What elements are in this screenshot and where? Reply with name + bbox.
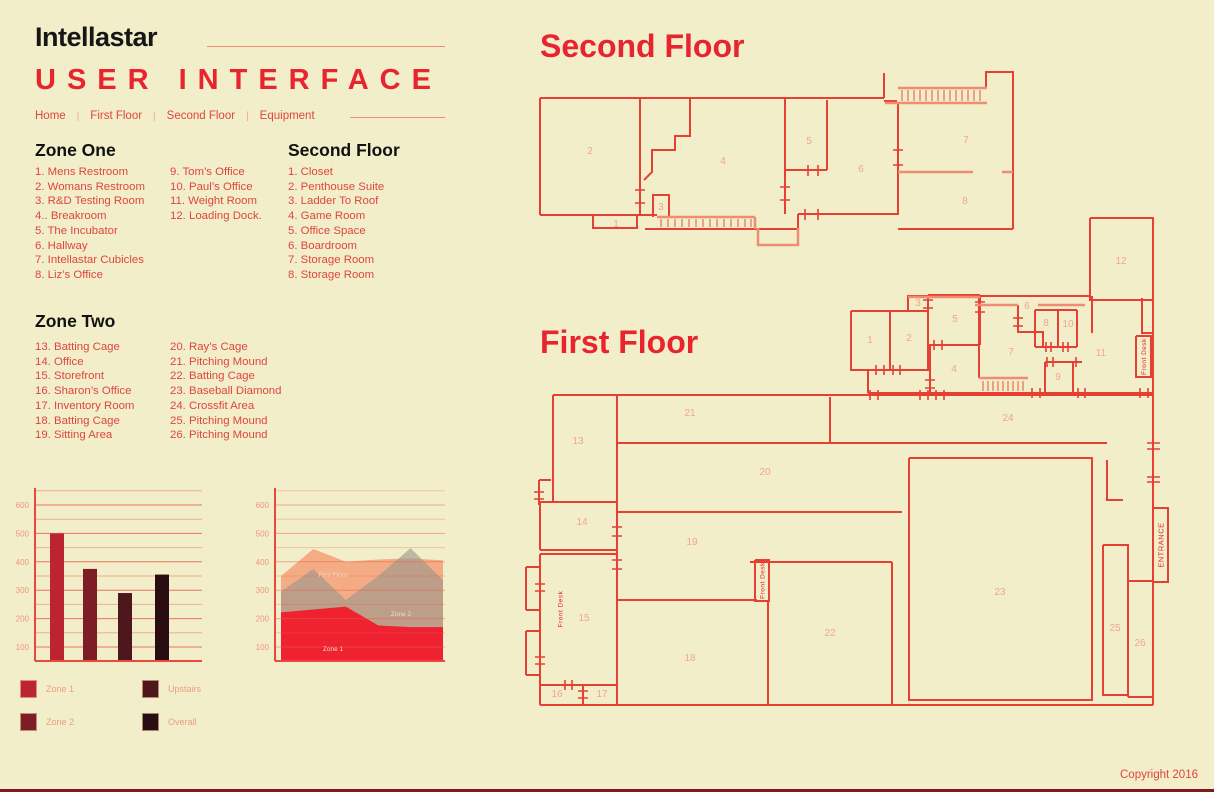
- room-list-item: 3. Ladder To Roof: [288, 194, 384, 209]
- nav-item-equipment[interactable]: Equipment: [260, 110, 315, 122]
- nav-separator: |: [153, 111, 156, 122]
- room-list-item: 22. Batting Cage: [170, 369, 281, 384]
- second-floor-heading: Second Floor: [288, 140, 400, 161]
- room-label: 25: [1109, 623, 1121, 634]
- zone-one-list-col2: 9. Tom’s Office 10. Paul’s Office 11. We…: [170, 165, 262, 224]
- nav-separator: |: [246, 111, 249, 122]
- room-list-item: 17. Inventory Room: [35, 399, 134, 414]
- svg-text:600: 600: [256, 501, 270, 510]
- svg-text:300: 300: [256, 586, 270, 595]
- room-list-item: 16. Sharon’s Office: [35, 384, 134, 399]
- legend-swatch-upstairs: [142, 680, 159, 698]
- nav-item-home[interactable]: Home: [35, 110, 66, 122]
- svg-text:Zone 1: Zone 1: [323, 646, 344, 653]
- room-label: 2: [587, 146, 593, 157]
- room-label: 8: [962, 196, 968, 207]
- room-label: 5: [952, 314, 958, 325]
- room-list-item: 7. Storage Room: [288, 253, 384, 268]
- room-list-item: 14. Office: [35, 355, 134, 370]
- legend-label: Zone 1: [46, 684, 74, 694]
- nav-divider-line: [350, 117, 445, 118]
- room-list-item: 5. The Incubator: [35, 224, 145, 239]
- zone-one-list-col1: 1. Mens Restroom 2. Womans Restroom 3. R…: [35, 165, 145, 283]
- room-label: 3: [658, 202, 664, 213]
- svg-text:100: 100: [256, 643, 270, 652]
- svg-text:100: 100: [16, 643, 30, 652]
- legend-label: Zone 2: [46, 717, 74, 727]
- room-label: 13: [572, 436, 584, 447]
- svg-text:500: 500: [256, 529, 270, 538]
- room-label: 14: [576, 517, 588, 528]
- svg-text:Zone 2: Zone 2: [391, 611, 412, 618]
- room-list-item: 8. Storage Room: [288, 268, 384, 283]
- room-label: 4: [720, 156, 726, 167]
- room-label: 8: [1043, 318, 1049, 329]
- room-label: 9: [1055, 372, 1061, 383]
- nav-separator: |: [77, 111, 80, 122]
- zone-two-heading: Zone Two: [35, 311, 115, 332]
- room-label: 6: [1024, 301, 1030, 312]
- copyright-text: Copyright 2016: [1120, 769, 1198, 781]
- room-list-item: 18. Batting Cage: [35, 414, 134, 429]
- room-list-item: 24. Crossfit Area: [170, 399, 281, 414]
- room-list-item: 26. Pitching Mound: [170, 428, 281, 443]
- room-label: 12: [1115, 256, 1127, 267]
- room-label: 10: [1062, 319, 1074, 330]
- page-title: USER INTERFACE: [35, 64, 442, 97]
- room-list-item: 19. Sitting Area: [35, 428, 134, 443]
- room-label: 19: [686, 537, 698, 548]
- room-list-item: 3. R&D Testing Room: [35, 194, 145, 209]
- room-label: 23: [994, 587, 1006, 598]
- room-list-item: 10. Paul’s Office: [170, 180, 262, 195]
- legend-label: Overall: [168, 717, 197, 727]
- room-list-item: 1. Mens Restroom: [35, 165, 145, 180]
- room-label: 17: [596, 689, 608, 700]
- room-label: 24: [1002, 413, 1014, 424]
- svg-text:300: 300: [16, 586, 30, 595]
- second-floor-door-marks: [635, 150, 903, 220]
- charts-canvas: 100200300400500600100200300400500600Firs…: [0, 480, 520, 680]
- svg-text:200: 200: [16, 615, 30, 624]
- legend-entry: Zone 2: [20, 705, 142, 738]
- room-label: 7: [963, 135, 969, 146]
- room-label: 20: [759, 467, 771, 478]
- second-floor-hatch-and-door-ticks: [661, 90, 980, 227]
- room-list-item: 8. Liz’s Office: [35, 268, 145, 283]
- second-floor-list: 1. Closet 2. Penthouse Suite 3. Ladder T…: [288, 165, 384, 283]
- header-divider-line: [207, 46, 445, 47]
- room-label: 21: [684, 408, 696, 419]
- room-list-item: 13. Batting Cage: [35, 340, 134, 355]
- legend-entry: Overall: [142, 705, 201, 738]
- nav-item-second-floor[interactable]: Second Floor: [167, 110, 235, 122]
- room-list-item: 11. Weight Room: [170, 194, 262, 209]
- legend-entry: Zone 1: [20, 672, 142, 705]
- zone-two-list-col1: 13. Batting Cage 14. Office 15. Storefro…: [35, 340, 134, 443]
- room-label: 1: [613, 219, 619, 230]
- room-label: 4: [951, 364, 957, 375]
- room-label: 7: [1008, 347, 1014, 358]
- room-list-item: 20. Ray’s Cage: [170, 340, 281, 355]
- page: Intellastar USER INTERFACE Home | First …: [0, 0, 1214, 792]
- room-label: 15: [578, 613, 590, 624]
- room-list-item: 1. Closet: [288, 165, 384, 180]
- room-list-item: 15. Storefront: [35, 369, 134, 384]
- room-list-item: 6. Boardroom: [288, 239, 384, 254]
- first-floor-door-marks: [534, 300, 1160, 698]
- legend-swatch-zone-2: [20, 713, 37, 731]
- legend-label: Upstairs: [168, 684, 201, 694]
- nav-item-first-floor[interactable]: First Floor: [90, 110, 142, 122]
- room-label: 1: [867, 335, 873, 346]
- legend-swatch-zone-1: [20, 680, 37, 698]
- floorplan-canvas: 1 2 3 4 5 6 7 8 1 2 3 4 5 6 7 8 9 10 11 …: [520, 60, 1214, 715]
- front-desk-label: Front Desk: [1141, 338, 1148, 375]
- room-list-item: 4. Game Room: [288, 209, 384, 224]
- room-list-item: 12. Loading Dock.: [170, 209, 262, 224]
- svg-text:400: 400: [16, 558, 30, 567]
- room-label: 2: [906, 333, 912, 344]
- room-list-item: 25. Pitching Mound: [170, 414, 281, 429]
- room-label: 11: [1096, 348, 1107, 359]
- svg-text:600: 600: [16, 501, 30, 510]
- room-list-item: 7. Intellastar Cubicles: [35, 253, 145, 268]
- svg-text:First Floor: First Floor: [318, 572, 348, 579]
- zone-two-list-col2: 20. Ray’s Cage 21. Pitching Mound 22. Ba…: [170, 340, 281, 443]
- room-list-item: 2. Womans Restroom: [35, 180, 145, 195]
- room-list-item: 5. Office Space: [288, 224, 384, 239]
- room-list-item: 21. Pitching Mound: [170, 355, 281, 370]
- room-list-item: 4.. Breakroom: [35, 209, 145, 224]
- front-desk-label: Front Desk: [760, 562, 767, 599]
- room-label: 3: [915, 298, 921, 309]
- room-label: 16: [551, 689, 563, 700]
- zone-one-heading: Zone One: [35, 140, 116, 161]
- first-floor-walls: [526, 218, 1168, 705]
- room-label: 5: [806, 136, 812, 147]
- brand-logo: Intellastar: [35, 22, 157, 53]
- legend-entry: Upstairs: [142, 672, 201, 705]
- front-desk-label: Front Desk: [558, 590, 565, 627]
- room-list-item: 23. Baseball Diamond: [170, 384, 281, 399]
- room-label: 6: [858, 164, 864, 175]
- svg-text:400: 400: [256, 558, 270, 567]
- chart-legend: Zone 1 Zone 2 Upstairs Overall: [20, 672, 201, 738]
- svg-text:200: 200: [256, 615, 270, 624]
- room-list-item: 9. Tom’s Office: [170, 165, 262, 180]
- room-label: 22: [824, 628, 836, 639]
- room-list-item: 2. Penthouse Suite: [288, 180, 384, 195]
- room-label: 26: [1134, 638, 1146, 649]
- svg-text:500: 500: [16, 529, 30, 538]
- room-list-item: 6. Hallway: [35, 239, 145, 254]
- main-nav: Home | First Floor | Second Floor | Equi…: [35, 110, 315, 122]
- second-floor-walls: [540, 72, 1013, 229]
- first-floor-hatch: [983, 381, 1023, 391]
- legend-swatch-overall: [142, 713, 159, 731]
- room-label: 18: [684, 653, 696, 664]
- entrance-label: ENTRANCE: [1157, 522, 1166, 567]
